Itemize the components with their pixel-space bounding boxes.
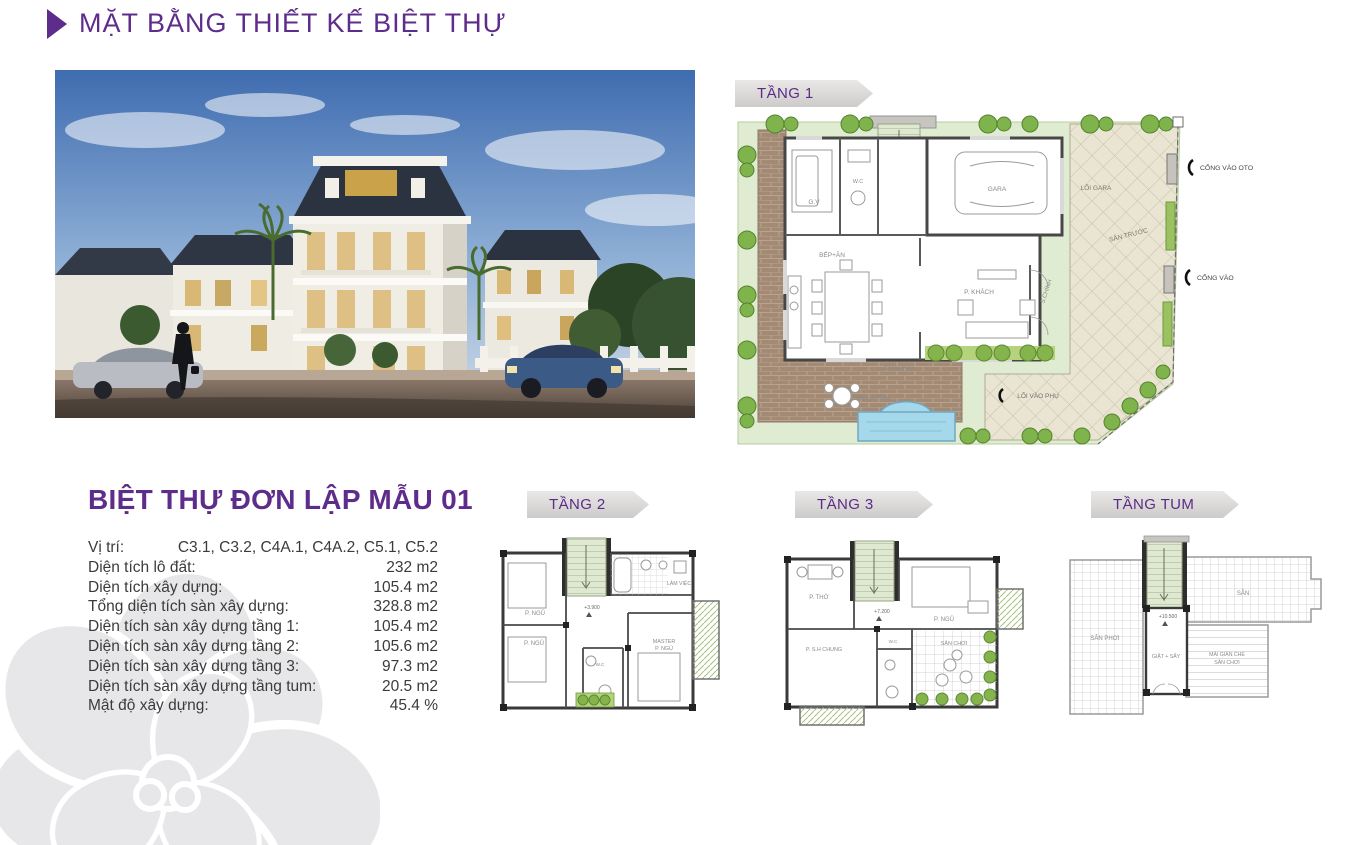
page-header: MẶT BẰNG THIẾT KẾ BIỆT THỰ bbox=[47, 8, 507, 39]
floor-tum-banner-label: TẦNG TUM bbox=[1113, 496, 1194, 513]
villa-model-title: BIỆT THỰ ĐƠN LẬP MẪU 01 bbox=[88, 484, 473, 516]
label-elevation: +7.200 bbox=[874, 609, 890, 615]
label-bedroom1: P. NGỦ bbox=[525, 610, 545, 617]
label-bedroom2: P. NGỦ bbox=[524, 640, 544, 647]
balcony bbox=[693, 601, 719, 679]
label-side-lobby: SẢNH PHỤ bbox=[884, 365, 914, 372]
spec-row: Diện tích sàn xây dựng tầng 3:97.3 m2 bbox=[88, 657, 438, 677]
spec-row: Diện tích sàn xây dựng tầng 2:105.6 m2 bbox=[88, 637, 438, 657]
label-bedroom: P. NGỦ bbox=[934, 616, 954, 623]
floor1-plan: G.V W.C BẾP+ĂN GARA P. KHÁCH S.CHÍNH SẢN… bbox=[730, 110, 1310, 455]
label-elevation: +3.900 bbox=[584, 605, 600, 611]
page-title: MẶT BẰNG THIẾT KẾ BIỆT THỰ bbox=[79, 8, 507, 39]
label-wc: W.C bbox=[596, 662, 605, 667]
label-canopy1: MÁI GIÀN CHE bbox=[1209, 651, 1245, 658]
spec-row: Diện tích xây dựng:105.4 m2 bbox=[88, 578, 438, 598]
front-balcony bbox=[800, 707, 864, 725]
floor-tum-plan: SÂN PHƠI GIẶT + SẤY MÁI GIÀN CHE SÂN CHƠ… bbox=[1058, 532, 1348, 737]
spec-row: Diện tích sàn xây dựng tầng tum:20.5 m2 bbox=[88, 677, 438, 697]
floor1-banner: TẦNG 1 bbox=[735, 80, 873, 107]
brochure-page: MẶT BẰNG THIẾT KẾ BIỆT THỰ bbox=[0, 0, 1366, 845]
label-roof-yard: SÂN bbox=[1237, 590, 1249, 597]
label-living-room: P. KHÁCH bbox=[964, 287, 994, 296]
stairs bbox=[850, 541, 899, 601]
label-wc: W.C bbox=[889, 639, 898, 644]
spec-row: Diện tích sàn xây dựng tầng 1:105.4 m2 bbox=[88, 617, 438, 637]
floor2-plan: P. NGỦ P. NGỦ LÀM VIỆC MASTER P. NGỦ W.C… bbox=[488, 533, 748, 728]
small-balcony bbox=[997, 589, 1023, 629]
label-canopy2: SÂN CHƠI bbox=[1214, 659, 1240, 666]
label-main-gate: CỔNG VÀO bbox=[1197, 273, 1234, 282]
label-drying-yard: SÂN PHƠI bbox=[1090, 635, 1119, 642]
label-master2: P. NGỦ bbox=[655, 645, 673, 652]
label-play-yard: SÂN CHƠI bbox=[941, 640, 968, 647]
floor3-plan: P. THỜ P. NGỦ P. S.H CHUNG W.C SÂN CHƠI … bbox=[772, 537, 1042, 732]
spec-row: Tổng diện tích sàn xây dựng:328.8 m2 bbox=[88, 597, 438, 617]
label-worship: P. THỜ bbox=[809, 594, 829, 601]
arrow-right-icon bbox=[47, 9, 67, 39]
stairs bbox=[1142, 536, 1189, 608]
label-study: LÀM VIỆC bbox=[667, 579, 691, 587]
planter bbox=[576, 693, 614, 707]
label-wc: W.C bbox=[853, 179, 863, 185]
stairs bbox=[562, 538, 611, 596]
label-garden-yard: SÂN VƯỜN bbox=[854, 393, 890, 402]
floor2-banner: TẦNG 2 bbox=[527, 491, 649, 518]
roof-right bbox=[1186, 557, 1321, 622]
spec-row: Vị trí:C3.1, C3.2, C4A.1, C4A.2, C5.1, C… bbox=[88, 538, 438, 558]
label-garage: GARA bbox=[988, 186, 1007, 193]
label-master1: MASTER bbox=[653, 639, 676, 645]
spec-table: Vị trí:C3.1, C3.2, C4A.1, C4A.2, C5.1, C… bbox=[88, 538, 438, 716]
label-maid-room: G.V bbox=[808, 199, 820, 206]
floor2-banner-label: TẦNG 2 bbox=[549, 496, 606, 513]
floor1-banner-label: TẦNG 1 bbox=[757, 85, 814, 102]
label-common-room: P. S.H CHUNG bbox=[806, 647, 842, 653]
floor3-banner-label: TẦNG 3 bbox=[817, 496, 874, 513]
floor3-banner: TẦNG 3 bbox=[795, 491, 933, 518]
label-car-gate: CỔNG VÀO OTO bbox=[1200, 163, 1253, 172]
label-laundry: GIẶT + SẤY bbox=[1152, 653, 1181, 660]
label-elevation: +10.500 bbox=[1159, 614, 1177, 620]
spec-row: Diện tích lô đất:232 m2 bbox=[88, 558, 438, 578]
floor-tum-banner: TẦNG TUM bbox=[1091, 491, 1239, 518]
villa-photo bbox=[55, 70, 695, 418]
spec-row: Mật độ xây dựng:45.4 % bbox=[88, 696, 438, 716]
